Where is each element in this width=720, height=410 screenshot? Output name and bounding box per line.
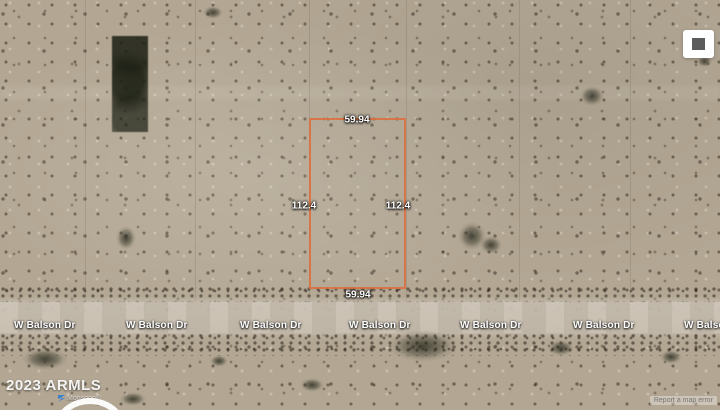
road-label: W Balson Dr [14, 320, 76, 331]
dimension-label-top: 59.94 [344, 115, 369, 126]
vegetation-blob [548, 340, 574, 356]
vegetation-blob [660, 350, 682, 364]
lot-line [406, 0, 407, 302]
road-label: W Balson Dr [573, 320, 635, 331]
vegetation-blob [203, 6, 223, 19]
vegetation-blob [480, 236, 502, 254]
road-label: W Balson Dr [684, 320, 720, 331]
monsoon-icon [58, 395, 65, 402]
lot-line [519, 0, 520, 302]
dimension-label-right: 112.4 [386, 201, 410, 212]
lot-line [85, 0, 86, 302]
vegetation-blob [300, 378, 324, 392]
map-thumbnail-icon [692, 38, 705, 50]
roadside-brush [0, 333, 720, 356]
lot-line [195, 0, 196, 302]
road-label: W Balson Dr [460, 320, 522, 331]
vegetation-blob [120, 392, 146, 406]
vegetation-blob [22, 348, 68, 370]
armls-watermark: 2023 ARMLS [6, 377, 101, 394]
road-label: W Balson Dr [240, 320, 302, 331]
satellite-map[interactable]: W Balson Dr W Balson Dr W Balson Dr W Ba… [0, 0, 720, 410]
vegetation-blob [388, 330, 458, 362]
tree-cluster [112, 36, 148, 132]
map-view-toggle-button[interactable] [683, 30, 714, 58]
vegetation-blob [116, 226, 136, 250]
road-label: W Balson Dr [126, 320, 188, 331]
dimension-label-bottom: 59.94 [345, 290, 370, 301]
lot-line [630, 0, 631, 302]
vegetation-blob [210, 355, 228, 367]
vegetation-blob [580, 86, 604, 106]
report-map-error-link[interactable]: Report a map error [650, 396, 717, 405]
dimension-label-left: 112.4 [292, 201, 316, 212]
road-label: W Balson Dr [349, 320, 411, 331]
terrain-light-band [0, 86, 720, 100]
